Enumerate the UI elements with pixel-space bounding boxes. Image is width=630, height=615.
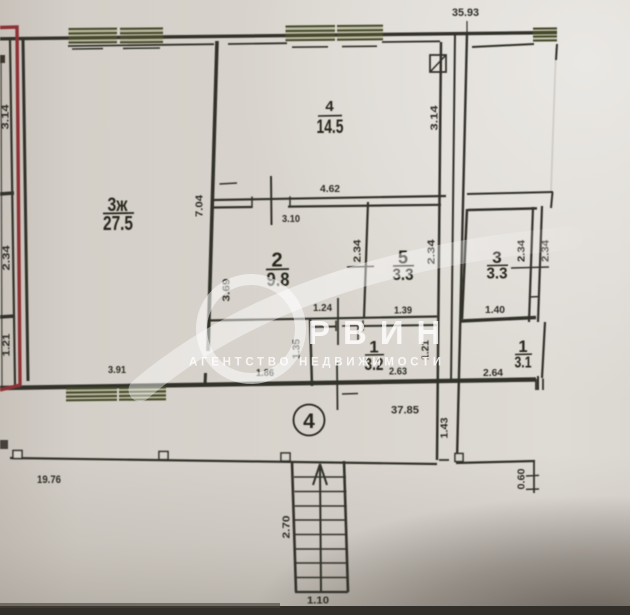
svg-text:35.93: 35.93 <box>452 7 479 19</box>
svg-text:27.5: 27.5 <box>103 213 133 235</box>
svg-text:1.10: 1.10 <box>307 595 329 607</box>
svg-text:7.04: 7.04 <box>194 195 206 217</box>
svg-text:0.60: 0.60 <box>516 468 528 489</box>
svg-text:4: 4 <box>325 98 334 115</box>
svg-text:2.64: 2.64 <box>483 367 503 379</box>
svg-text:3.10: 3.10 <box>282 213 300 225</box>
svg-text:3.14: 3.14 <box>429 105 441 130</box>
svg-text:4.62: 4.62 <box>320 183 340 195</box>
svg-text:3.1: 3.1 <box>515 355 532 372</box>
svg-text:4: 4 <box>303 410 315 433</box>
svg-text:1.24: 1.24 <box>313 302 332 314</box>
svg-text:37.85: 37.85 <box>391 405 419 417</box>
svg-text:1.40: 1.40 <box>485 304 505 316</box>
svg-text:3.3: 3.3 <box>487 266 508 283</box>
svg-text:3.14: 3.14 <box>0 104 12 129</box>
svg-text:14.5: 14.5 <box>317 117 344 138</box>
svg-text:19.76: 19.76 <box>37 474 61 486</box>
svg-text:2.70: 2.70 <box>281 515 293 538</box>
svg-text:РВИН: РВИН <box>308 314 453 351</box>
svg-text:2.34: 2.34 <box>352 239 364 262</box>
svg-text:2.34: 2.34 <box>1 245 13 270</box>
svg-text:3.91: 3.91 <box>108 364 126 376</box>
svg-text:АГЕНТСТВО НЕДВИЖИМОСТИ: АГЕНТСТВО НЕДВИЖИМОСТИ <box>189 357 445 369</box>
svg-text:1.21: 1.21 <box>1 333 13 356</box>
svg-text:1.43: 1.43 <box>439 417 451 438</box>
svg-text:1: 1 <box>518 338 527 356</box>
